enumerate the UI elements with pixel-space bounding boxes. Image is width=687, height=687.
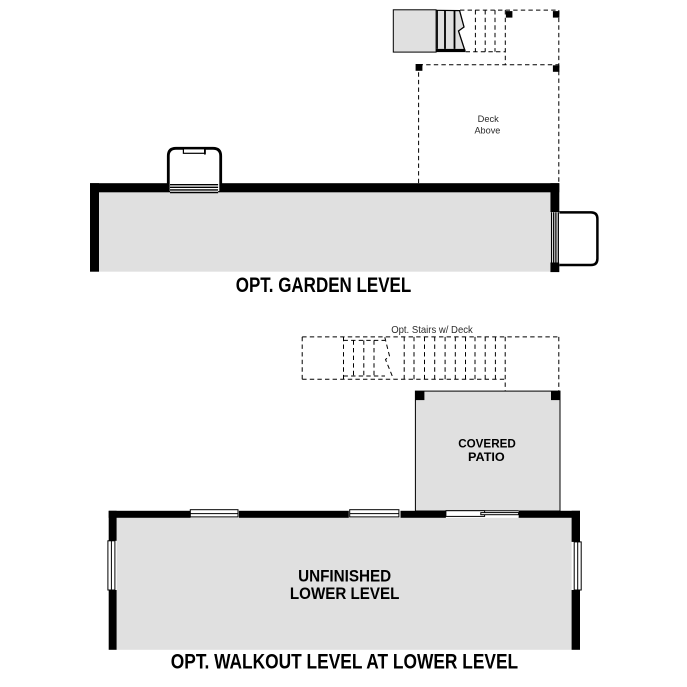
svg-text:Deck: Deck [478,114,499,125]
svg-text:COVERED: COVERED [458,437,516,451]
svg-text:Above: Above [474,126,500,137]
svg-text:LOWER LEVEL: LOWER LEVEL [290,585,400,603]
svg-text:OPT. GARDEN LEVEL: OPT. GARDEN LEVEL [236,274,412,297]
svg-text:UNFINISHED: UNFINISHED [298,568,391,586]
svg-text:PATIO: PATIO [468,450,505,464]
svg-text:OPT. WALKOUT LEVEL AT LOWER LE: OPT. WALKOUT LEVEL AT LOWER LEVEL [171,650,518,674]
svg-text:Opt. Stairs w/ Deck: Opt. Stairs w/ Deck [391,325,473,336]
